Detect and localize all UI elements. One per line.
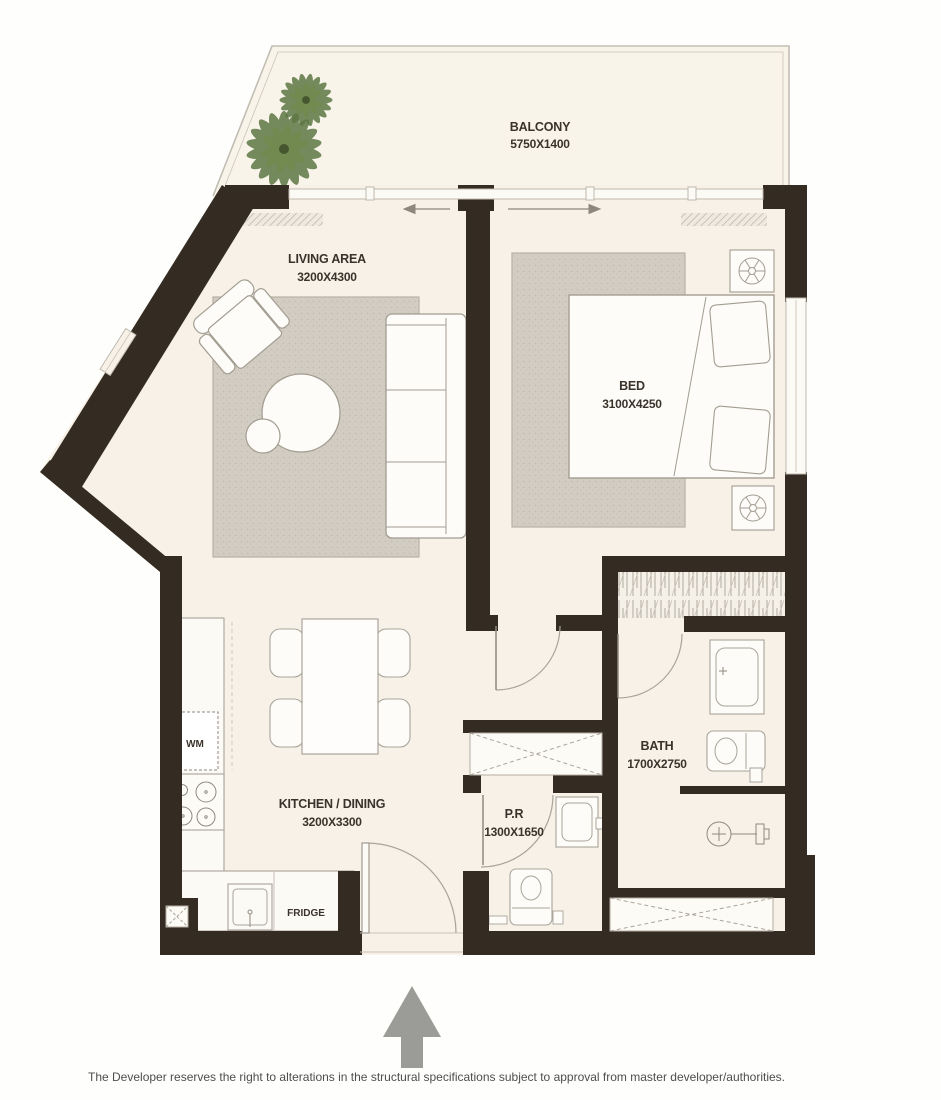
pr-label: P.R [505,807,524,821]
floor-plan-page: BALCONY 5750X1400 [0,0,941,1100]
bed-dims: 3100X4250 [602,397,662,411]
living-label: LIVING AREA [288,252,366,266]
balcony-dims: 5750X1400 [510,137,570,151]
bed-label: BED [619,379,645,393]
wardrobe [618,572,787,618]
kitchen-dims: 3200X3300 [302,815,362,829]
living-dims: 3200X4300 [297,270,357,284]
pillow [709,406,770,475]
balcony: BALCONY 5750X1400 [213,46,789,196]
window-mullion [586,187,594,200]
floor-plan-svg: BALCONY 5750X1400 [0,0,941,1100]
developer-disclaimer: The Developer reserves the right to alte… [88,1070,785,1084]
dining-chair [270,699,304,747]
balcony-label: BALCONY [510,120,571,134]
entry-door-leaf [362,843,369,933]
pr-dims: 1300X1650 [484,825,544,839]
dining-table [302,619,378,754]
lamp-icon [740,495,766,521]
bath-label: BATH [641,739,674,753]
dining-chair [270,629,304,677]
window-mullion [366,187,374,200]
dining-chair [376,629,410,677]
waste-bin [553,911,563,924]
window-mullion [688,187,696,200]
kitchen-label: KITCHEN / DINING [279,797,386,811]
wm-label: WM [186,739,204,750]
fridge-label: FRIDGE [287,908,325,919]
bed [569,295,774,478]
pillow [709,301,770,368]
window-sill-hatch-bed [681,213,767,226]
sink-icon [228,884,272,930]
duct-x [470,733,602,775]
lamp-icon [739,258,765,284]
dining-chair [376,699,410,747]
duct-x [166,906,188,927]
window-sill-hatch-living [237,213,323,226]
bath-dims: 1700X2750 [627,757,687,771]
bath-vanity-sink-icon [710,640,764,714]
side-table [246,419,280,453]
entry-arrow-icon [383,986,441,1068]
bath-mat [489,916,507,924]
duct-x [610,898,773,931]
sofa [386,314,466,538]
